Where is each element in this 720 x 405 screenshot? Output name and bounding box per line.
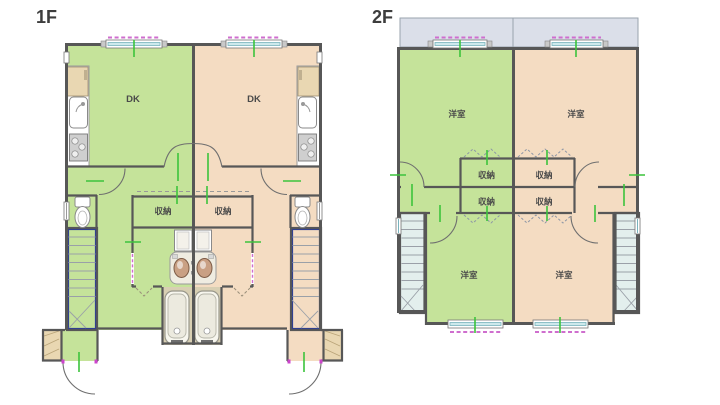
room-label-lower-left: 洋室 bbox=[460, 270, 478, 280]
laundry-left bbox=[175, 230, 193, 251]
bathtub-icon-left bbox=[165, 291, 189, 345]
sink-icon bbox=[70, 97, 88, 128]
storage-label-lower-left: 収納 bbox=[478, 197, 495, 207]
storage-label-upper-left: 収納 bbox=[478, 170, 495, 180]
entrance-right-floor bbox=[287, 330, 324, 361]
kitchen-right bbox=[297, 66, 320, 166]
entrance-right-step bbox=[324, 330, 343, 361]
room-label-upper-right: 洋室 bbox=[567, 109, 585, 119]
toilet-icon-right bbox=[295, 197, 310, 228]
room-lower-left-floor bbox=[425, 213, 513, 325]
storage-label-lower-right: 収納 bbox=[535, 197, 552, 207]
laundry-right bbox=[194, 230, 212, 251]
floorplan-canvas: 1F bbox=[0, 0, 720, 405]
floor-plan-2f: 2F bbox=[360, 0, 720, 405]
sink-icon bbox=[299, 97, 317, 128]
bathtub-icon-right bbox=[195, 291, 219, 345]
room-label-storage-left: 収納 bbox=[154, 206, 171, 216]
storage-label-upper-right: 収納 bbox=[535, 170, 552, 180]
room-lower-right-floor bbox=[513, 213, 615, 325]
room-label-upper-left: 洋室 bbox=[448, 109, 466, 119]
floor-label-1f: 1F bbox=[36, 7, 57, 27]
room-label-dk-left: DK bbox=[126, 94, 140, 105]
room-label-dk-right: DK bbox=[247, 94, 261, 105]
door-jamb-marks bbox=[62, 360, 323, 364]
room-label-storage-right: 収納 bbox=[214, 206, 231, 216]
room-label-lower-right: 洋室 bbox=[555, 270, 573, 280]
toilet-icon-left bbox=[75, 197, 90, 228]
floor-label-2f: 2F bbox=[372, 7, 393, 27]
entrance-door-arc bbox=[289, 362, 321, 394]
kitchen-left bbox=[66, 66, 89, 166]
floor-plan-1f: 1F bbox=[0, 0, 360, 405]
